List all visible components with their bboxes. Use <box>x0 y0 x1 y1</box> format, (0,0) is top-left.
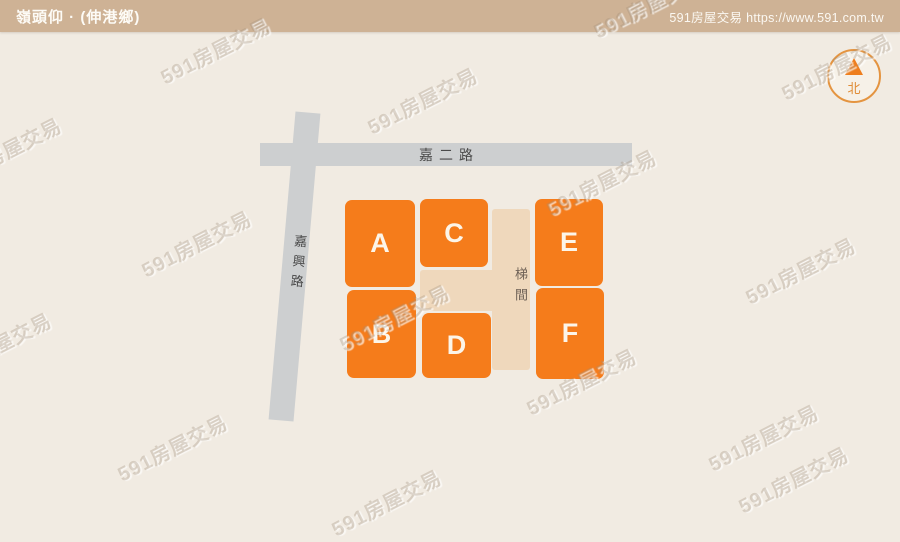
building-d[interactable]: D <box>422 313 491 378</box>
project-title: 嶺頭仰 · (伸港鄉) <box>16 6 140 27</box>
watermark: 591房屋交易 <box>112 407 232 487</box>
watermark: 591房屋交易 <box>740 230 860 310</box>
building-e-label: E <box>560 227 578 258</box>
north-arrow-icon <box>845 58 863 75</box>
road-horizontal-label: 嘉二路 <box>413 145 479 165</box>
building-c[interactable]: C <box>420 199 488 267</box>
road-vertical-label: 嘉興路 <box>280 233 310 295</box>
compass-north-label: 北 <box>829 78 879 97</box>
watermark: 591房屋交易 <box>703 397 823 477</box>
building-e[interactable]: E <box>535 199 603 286</box>
building-c-label: C <box>444 218 464 249</box>
building-f-label: F <box>562 318 579 349</box>
building-a-label: A <box>370 228 390 259</box>
compass: 北 <box>827 49 881 103</box>
building-f[interactable]: F <box>536 288 604 379</box>
site-url-label: 591房屋交易 https://www.591.com.tw <box>669 7 884 26</box>
building-d-label: D <box>447 330 467 361</box>
header-bar: 嶺頭仰 · (伸港鄉) 591房屋交易 https://www.591.com.… <box>0 0 900 32</box>
watermark: 591房屋交易 <box>326 462 446 542</box>
watermark: 591房屋交易 <box>136 203 256 283</box>
watermark: 591房屋交易 <box>733 439 853 519</box>
watermark: 591房屋交易 <box>362 60 482 140</box>
stairwell-corridor-vertical: 梯間 <box>492 209 530 370</box>
building-a[interactable]: A <box>345 200 415 287</box>
building-b-label: B <box>372 319 392 350</box>
stairwell-label: 梯間 <box>492 267 530 309</box>
stairwell-corridor-horizontal <box>420 270 496 311</box>
watermark: 591房屋交易 <box>0 110 66 190</box>
building-b[interactable]: B <box>347 290 416 378</box>
watermark: 591房屋交易 <box>0 305 56 385</box>
